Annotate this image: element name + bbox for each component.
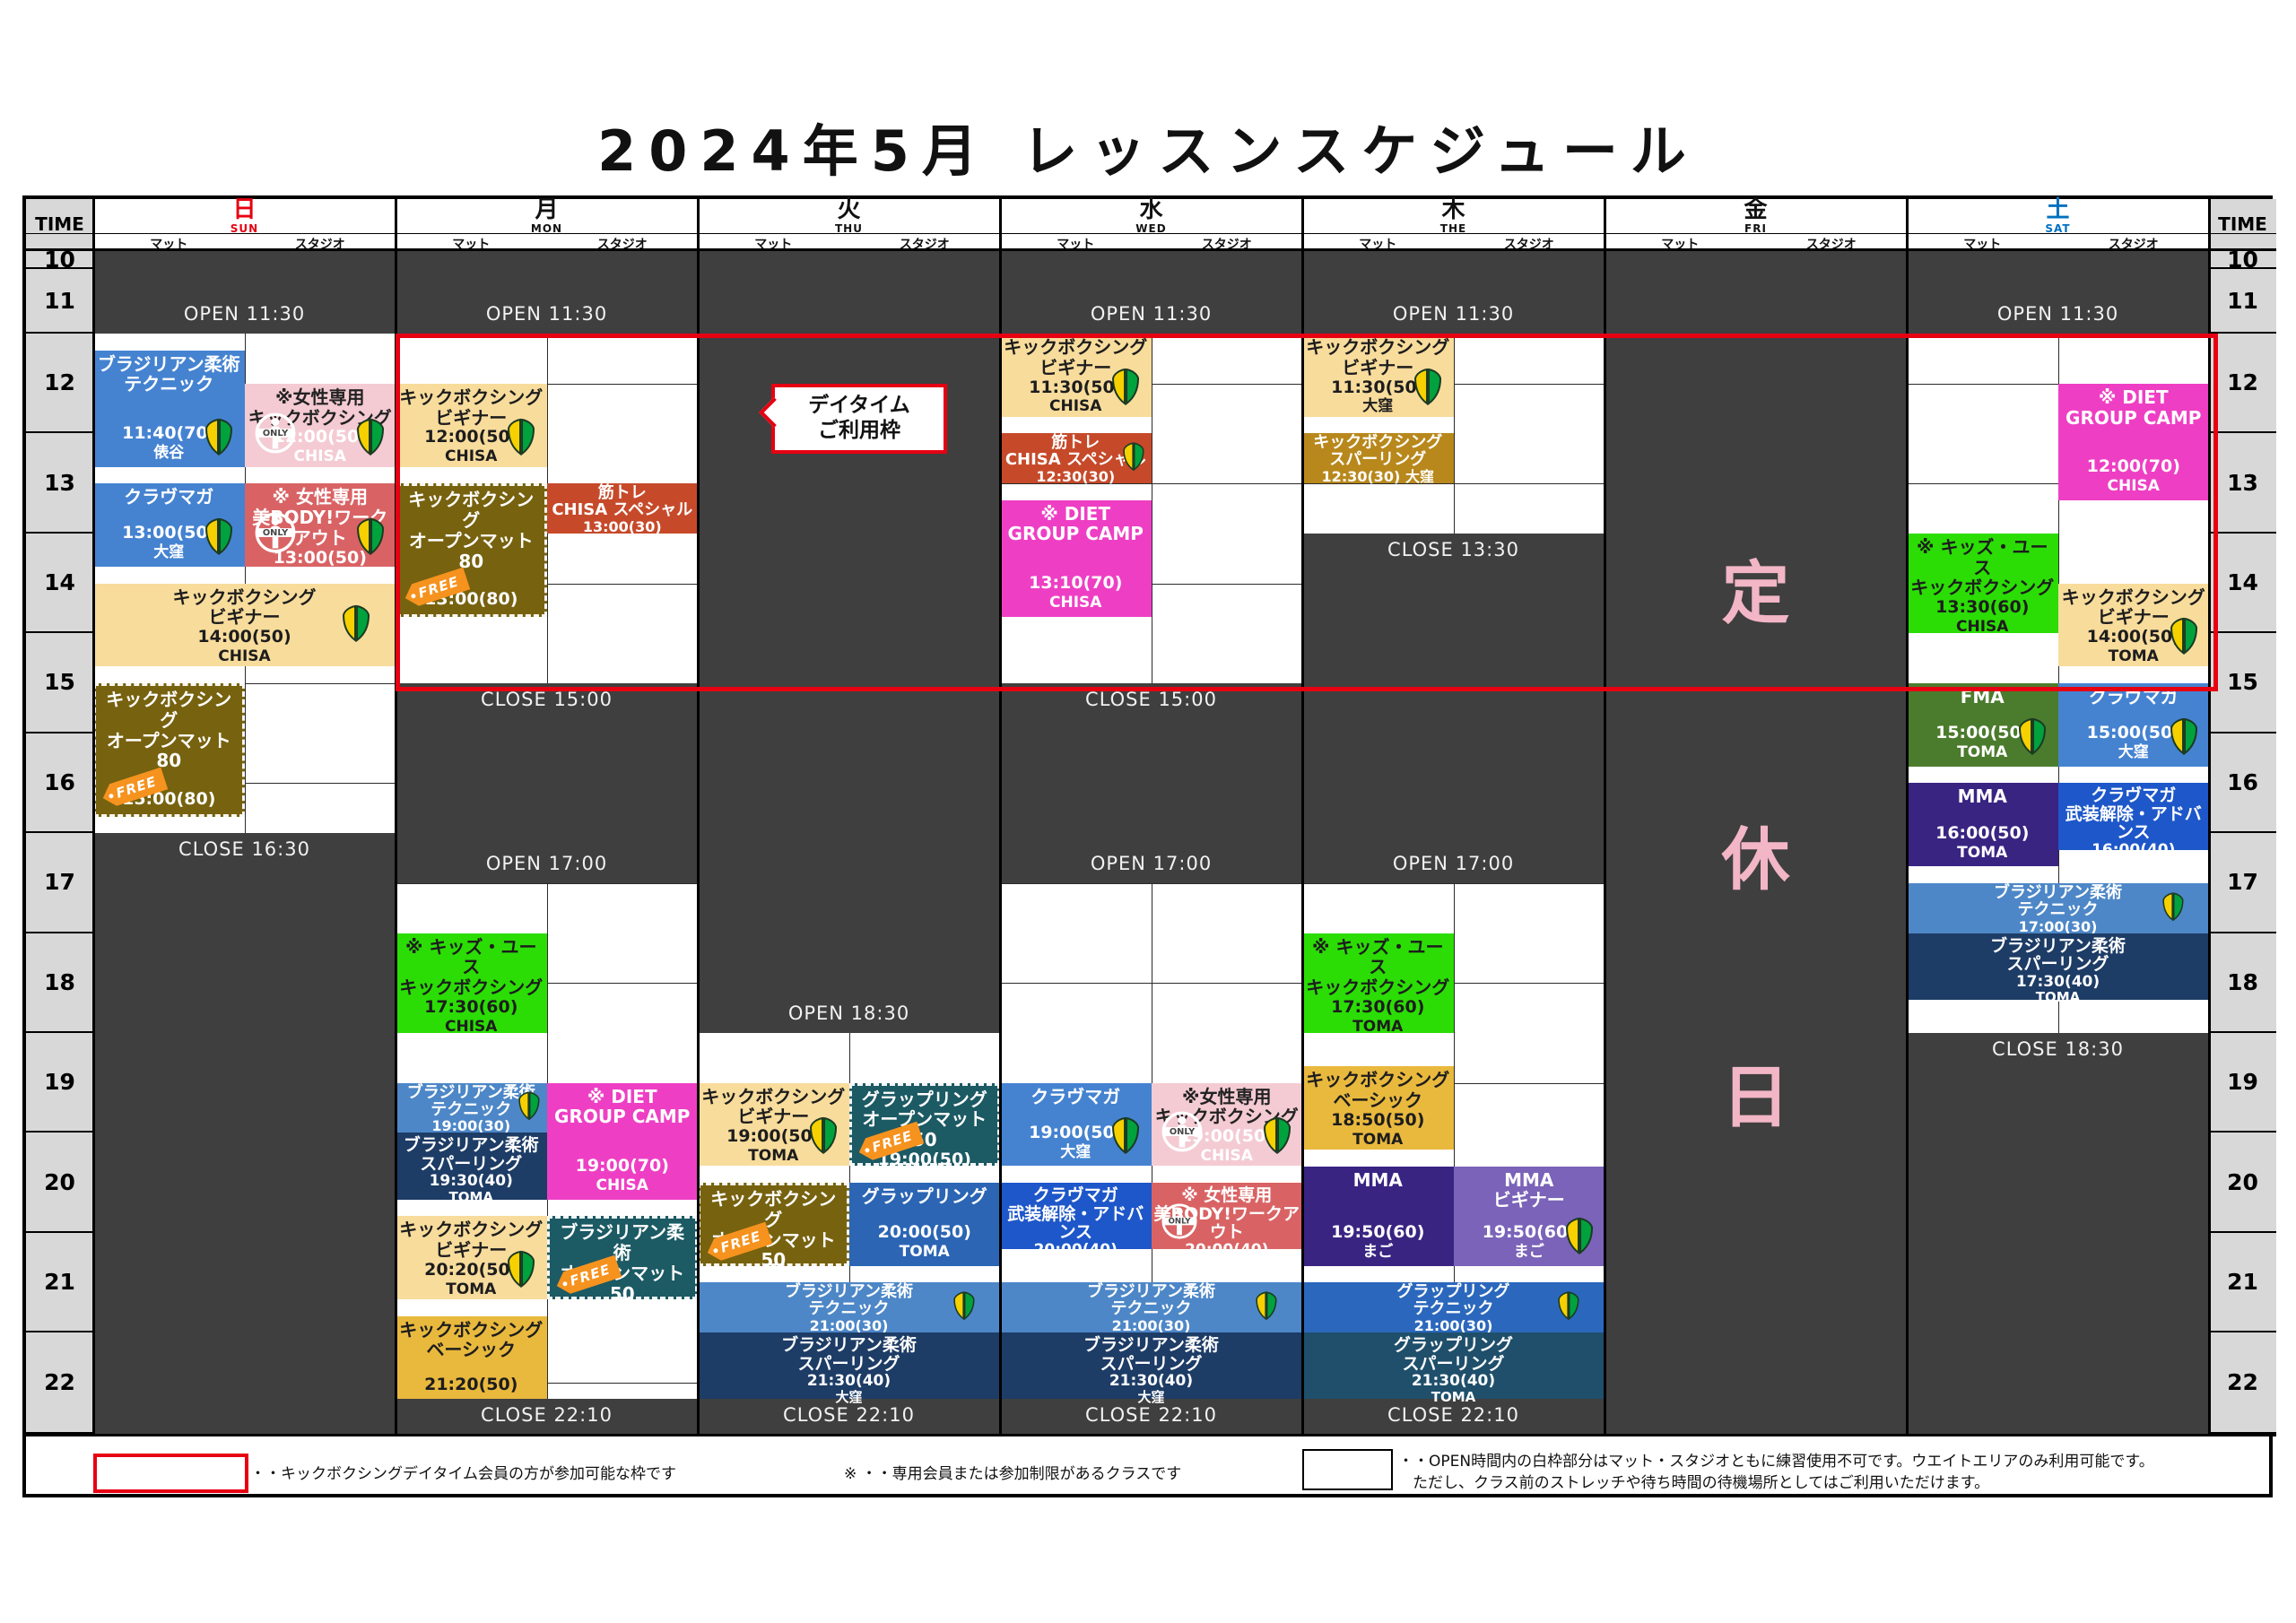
class-title: クラヴマガ <box>2089 687 2179 707</box>
class-time: 19:50(60) <box>1331 1223 1424 1242</box>
class-block: ブラジリアン柔術テクニック21:00(30) <box>1000 1282 1302 1332</box>
class-time: 13:00(30) <box>583 519 662 535</box>
day-kanji-label: 金 <box>1744 197 1767 222</box>
class-block: キックボクシングビギナー12:00(50)CHISA <box>396 384 547 467</box>
page-title: 2024年5月 レッスンスケジュール <box>0 106 2296 187</box>
women-only-icon: ONLY <box>254 511 297 558</box>
class-time: 11:30(50) <box>1029 378 1122 397</box>
class-title: キックボクシングベーシック <box>1306 1070 1449 1111</box>
class-block: クラヴマガ15:00(50)大窪 <box>2058 683 2210 767</box>
class-schedule-info: 16:00(40)大窪 <box>2092 842 2175 873</box>
beginner-mark-icon <box>203 516 235 560</box>
class-time: 21:30(40) <box>807 1373 891 1390</box>
class-schedule-info: 14:00(50)TOMA <box>2087 628 2180 665</box>
class-time: 19:00(50) <box>726 1127 820 1146</box>
class-schedule-info: 17:30(60)CHISA <box>424 998 517 1036</box>
beginner-mark-icon <box>517 1090 542 1124</box>
day-header-sat: 土SAT <box>1907 199 2209 233</box>
class-time: 14:00(50) <box>197 628 291 647</box>
class-schedule-info: 14:00(50)CHISA <box>197 628 291 665</box>
class-schedule-info: 13:00(30) <box>583 519 662 535</box>
class-title: キックボクシングビギナー <box>173 587 317 629</box>
class-schedule-info: 12:00(70)CHISA <box>2087 457 2180 495</box>
open-close-label: OPEN 11:30 <box>93 303 396 325</box>
class-instructor: TOMA <box>1412 1390 1495 1405</box>
time-axis-hour-20: 20 <box>26 1133 93 1232</box>
open-close-label: CLOSE 22:10 <box>1302 1404 1605 1426</box>
class-time: 20:00(50) <box>878 1223 971 1242</box>
class-block: MMA16:00(50)TOMA <box>1907 783 2058 866</box>
class-title: FMA <box>1961 687 2005 707</box>
class-time: 17:30(60) <box>424 998 517 1017</box>
holiday-label-char: 定 <box>1605 538 1907 637</box>
open-close-label: OPEN 17:00 <box>1000 853 1302 874</box>
class-title: ※ DIETGROUP CAMP <box>554 1087 690 1128</box>
class-schedule-info: 12:30(30) <box>1036 469 1115 485</box>
class-block: ※女性専用キックボクシング12:00(50)CHISAONLY <box>245 384 396 467</box>
class-time: 17:30(60) <box>1331 998 1424 1017</box>
class-title: クラヴマガ武装解除・アドバンス <box>1002 1186 1150 1242</box>
open-close-label: CLOSE 15:00 <box>1000 689 1302 710</box>
class-title: ブラジリアン柔術テクニック <box>98 354 240 395</box>
time-axis-header: TIME <box>26 199 93 251</box>
day-column-mon: OPEN 11:30CLOSE 15:00OPEN 17:00CLOSE 22:… <box>396 251 698 1434</box>
class-title: キックボクシングベーシック <box>399 1320 543 1361</box>
svg-text:ONLY: ONLY <box>1168 1218 1191 1227</box>
class-title: ※ キッズ・ユースキックボクシング <box>1304 937 1452 998</box>
open-close-label: CLOSE 22:10 <box>1000 1404 1302 1426</box>
class-time: 12:30(30) 大窪 <box>1322 469 1434 485</box>
time-axis-hour-15: 15 <box>2209 633 2276 733</box>
class-instructor: TOMA <box>1935 744 2029 761</box>
beginner-mark-icon <box>505 1249 537 1292</box>
grid-bottom-border <box>26 1434 2276 1436</box>
class-title: グラップリング <box>862 1186 987 1207</box>
closed-hours-area <box>698 251 1000 1033</box>
class-block: MMA19:50(60)まご <box>1302 1167 1454 1266</box>
day-header-tue: 火THU <box>698 199 1000 233</box>
class-instructor: CHISA <box>2087 478 2180 495</box>
header-bottom-border <box>26 248 2276 251</box>
class-time: 14:00(50) <box>2087 628 2180 647</box>
day-header-fri: 金FRI <box>1605 199 1907 233</box>
beginner-mark-icon <box>1412 367 1444 410</box>
class-instructor: TOMA <box>2016 990 2100 1005</box>
time-axis-hour-22: 22 <box>2209 1332 2276 1434</box>
day-header-wed: 水WED <box>1000 199 1302 233</box>
class-schedule-info: 20:00(50)TOMA <box>878 1223 971 1261</box>
class-schedule-info: 19:50(60)まご <box>1483 1223 1576 1261</box>
day-kanji-label: 土 <box>2046 197 2069 222</box>
class-time: 16:00(50) <box>1935 824 2029 843</box>
class-block: キックボクシングビギナー11:30(50)大窪 <box>1302 334 1454 417</box>
class-instructor: 大窪 <box>2087 744 2180 761</box>
open-close-label: OPEN 11:30 <box>1000 303 1302 325</box>
time-axis-hour-21: 21 <box>2209 1233 2276 1332</box>
class-schedule-info: 13:00(50)大窪 <box>122 524 215 561</box>
day-kanji-label: 水 <box>1139 197 1162 222</box>
class-block: クラヴマガ19:00(50)大窪 <box>1000 1083 1152 1167</box>
class-instructor: 大窪 <box>807 1390 891 1405</box>
class-schedule-info: 17:30(40)TOMA <box>2016 974 2100 1005</box>
class-block: ※ DIETGROUP CAMP13:10(70)CHISA <box>1000 500 1152 617</box>
beginner-mark-icon <box>2168 616 2200 659</box>
class-block: キックボクシングビギナー19:00(50)TOMA <box>698 1083 849 1167</box>
time-axis-hour-14: 14 <box>2209 534 2276 633</box>
women-only-icon: ONLY <box>1161 1110 1204 1157</box>
class-instructor: 大窪 <box>2092 859 2175 874</box>
time-axis-hour-22: 22 <box>26 1332 93 1434</box>
class-time: 16:00(40) <box>2092 842 2175 859</box>
class-block: ※ キッズ・ユースキックボクシング17:30(60)CHISA <box>396 933 547 1033</box>
class-time: 19:00(50) <box>576 1304 669 1323</box>
time-axis-hour-10: 10 <box>2209 251 2276 269</box>
class-time: 11:40(70) <box>122 424 215 443</box>
class-instructor: TOMA <box>424 1281 517 1298</box>
class-title: ブラジリアン柔術テクニック <box>1087 1284 1215 1318</box>
class-instructor: CHISA <box>1935 619 2029 636</box>
class-title: ブラジリアン柔術スパーリング <box>1083 1336 1219 1373</box>
class-title: グラップリングスパーリング <box>1394 1336 1513 1373</box>
class-time: 19:00(50) <box>1029 1124 1122 1142</box>
class-title: ブラジリアン柔術スパーリング <box>781 1336 917 1373</box>
class-title: ※ DIETGROUP CAMP <box>1008 504 1144 545</box>
column-border-line <box>1906 199 1909 1434</box>
class-instructor: CHISA <box>576 1177 669 1194</box>
beginner-mark-icon <box>354 516 387 560</box>
class-block: ※女性専用キックボクシング19:00(50)CHISAONLY <box>1152 1083 1303 1167</box>
class-schedule-info: 21:30(40)TOMA <box>1412 1373 1495 1404</box>
column-border-line <box>2208 199 2211 1434</box>
legend-whitearea-note-1: ・・OPEN時間内の白枠部分はマット・スタジオともに練習使用不可です。ウエイトエ… <box>1398 1448 2154 1471</box>
svg-text:ONLY: ONLY <box>262 528 288 538</box>
day-header-mon: 月MON <box>396 199 698 233</box>
class-instructor: CHISA <box>424 1019 517 1036</box>
class-instructor: CHISA <box>1029 398 1122 415</box>
beginner-mark-icon <box>1261 1115 1293 1159</box>
class-block: ※ キッズ・ユースキックボクシング17:30(60)TOMA <box>1302 933 1454 1033</box>
column-border-line <box>395 199 397 1434</box>
class-time: 20:20(50) <box>424 1261 517 1280</box>
class-block: キックボクシングベーシック18:50(50)TOMA <box>1302 1066 1454 1150</box>
legend-whitearea-note-2: ただし、クラス前のストレッチや待ち時間の待機場所としてはご利用いただけます。 <box>1398 1470 1989 1492</box>
beginner-mark-icon <box>340 603 372 647</box>
holiday-label-char: 日 <box>1605 1042 1907 1141</box>
class-schedule-info: 11:40(70)俵谷 <box>122 424 215 462</box>
day-kanji-label: 木 <box>1441 197 1465 222</box>
class-schedule-info: 19:00(50)大窪 <box>1029 1124 1122 1161</box>
class-block: ブラジリアン柔術スパーリング17:30(40)TOMA <box>1907 933 2209 1000</box>
open-close-label: OPEN 17:00 <box>1302 853 1605 874</box>
class-time: 19:50(60) <box>1483 1223 1576 1242</box>
beginner-mark-icon <box>1121 441 1146 475</box>
header-divider-line <box>26 233 2276 234</box>
lesson-schedule-page: 2024年5月 レッスンスケジュール デイタイム ご利用枠 ・・キックボクシング… <box>0 0 2296 1623</box>
class-block: グラップリングスパーリング21:30(40)TOMA <box>1302 1332 1605 1399</box>
time-axis-hour-16: 16 <box>2209 733 2276 833</box>
class-instructor: CHISA <box>197 648 291 665</box>
class-instructor: TOMA <box>878 1244 971 1261</box>
class-time: 20:00(40) <box>1034 1242 1118 1259</box>
time-axis-hour-10: 10 <box>26 251 93 269</box>
beginner-mark-icon <box>1254 1290 1279 1324</box>
legend-whitearea-swatch <box>1302 1449 1393 1490</box>
class-instructor: まご <box>1483 1244 1576 1261</box>
class-instructor: TOMA <box>726 1148 820 1165</box>
class-schedule-info: 19:30(40)TOMA <box>430 1173 513 1204</box>
class-instructor: TOMA <box>2087 648 2180 665</box>
class-block: MMAビギナー19:50(60)まご <box>1454 1167 1605 1266</box>
class-instructor: TOMA <box>1331 1132 1424 1149</box>
time-axis-hour-12: 12 <box>26 334 93 433</box>
time-axis-hour-15: 15 <box>26 633 93 733</box>
class-block: キックボクシングビギナー14:00(50)CHISA <box>93 584 396 667</box>
time-axis-hour-19: 19 <box>2209 1033 2276 1133</box>
class-time: 12:00(70) <box>2087 457 2180 476</box>
class-title: MMAビギナー <box>1493 1170 1565 1211</box>
beginner-mark-icon <box>2016 716 2048 759</box>
class-title: クラヴマガ <box>124 487 213 508</box>
day-header-thu: 木THE <box>1302 199 1605 233</box>
class-schedule-info: 16:00(50)TOMA <box>1935 824 2029 862</box>
open-close-label: OPEN 11:30 <box>396 303 698 325</box>
class-block: キックボクシングベーシック21:20(50) <box>396 1316 547 1400</box>
column-border-line <box>92 199 95 1434</box>
class-instructor: まご <box>1331 1244 1424 1261</box>
class-time: 19:30(40) <box>430 1173 513 1190</box>
class-schedule-info: 12:30(30) 大窪 <box>1322 469 1434 485</box>
column-border-line <box>1301 199 1304 1434</box>
open-close-label: CLOSE 13:30 <box>1302 539 1605 560</box>
class-schedule-info: 19:00(50)TOMA <box>726 1127 820 1165</box>
class-title: MMA <box>1958 786 2007 807</box>
callout-line1: デイタイム <box>808 394 910 419</box>
open-close-label: OPEN 18:30 <box>698 1002 1000 1024</box>
class-block: ブラジリアン柔術スパーリング21:30(40)大窪 <box>698 1332 1000 1399</box>
class-schedule-info: 13:10(70)CHISA <box>1029 574 1122 612</box>
class-schedule-info: 21:20(50) <box>424 1376 517 1394</box>
closed-hours-area <box>1302 534 1605 883</box>
svg-text:ONLY: ONLY <box>262 429 288 438</box>
day-column-wed: OPEN 11:30CLOSE 15:00OPEN 17:00CLOSE 22:… <box>1000 251 1302 1434</box>
class-schedule-info: 19:00(70)CHISA <box>576 1157 669 1194</box>
class-block: ブラジリアン柔術スパーリング21:30(40)大窪 <box>1000 1332 1302 1399</box>
class-schedule-info: 15:00(50)TOMA <box>1935 724 2029 761</box>
time-axis-hour-11: 11 <box>26 269 93 334</box>
class-block: ブラジリアン柔術テクニック19:00(30) <box>396 1083 547 1133</box>
class-time: 15:00(50) <box>2087 724 2180 742</box>
class-time: 21:30(40) <box>1412 1373 1495 1390</box>
class-instructor: 大窪 <box>1034 1258 1118 1273</box>
class-block: ブラジリアン柔術テクニック17:00(30) <box>1907 883 2209 933</box>
class-block: ※ キッズ・ユースキックボクシング13:30(60)CHISA <box>1907 534 2058 633</box>
class-time: 15:00(50) <box>1935 724 2029 742</box>
class-block: ブラジリアン柔術テクニック11:40(70)俵谷 <box>93 351 245 467</box>
beginner-mark-icon <box>354 417 387 460</box>
time-axis-header: TIME <box>2209 199 2276 251</box>
open-close-label: OPEN 11:30 <box>1907 303 2209 325</box>
class-title: MMA <box>1353 1170 1403 1191</box>
class-block: クラヴマガ武装解除・アドバンス16:00(40)大窪 <box>2058 783 2210 849</box>
class-time: 13:10(70) <box>1029 574 1122 593</box>
class-block: キックボクシングオープンマット8015:00(80)FREE <box>93 683 245 817</box>
class-instructor: CHISA <box>424 448 517 465</box>
class-block: キックボクシングスパーリング12:30(30) 大窪 <box>1302 433 1454 483</box>
class-block: ※ DIETGROUP CAMP19:00(70)CHISA <box>547 1083 699 1200</box>
time-axis-hour-21: 21 <box>26 1233 93 1332</box>
beginner-mark-icon <box>952 1290 977 1324</box>
day-column-sun: OPEN 11:30CLOSE 16:30ブラジリアン柔術テクニック11:40(… <box>93 251 396 1434</box>
class-time: 21:20(50) <box>424 1376 517 1394</box>
class-block: グラップリングオープンマット 5019:00(50)FREE <box>849 1083 1001 1167</box>
class-instructor: 大窪 <box>1109 1390 1193 1405</box>
class-schedule-info: 15:00(50)大窪 <box>2087 724 2180 761</box>
class-schedule-info: 11:30(50)大窪 <box>1331 378 1424 416</box>
class-instructor: CHISA <box>1029 595 1122 612</box>
women-only-icon: ONLY <box>254 412 297 458</box>
column-border-line <box>697 199 700 1434</box>
class-instructor: 大窪 <box>122 544 215 561</box>
women-only-icon: ONLY <box>1161 1202 1198 1244</box>
beginner-mark-icon <box>203 417 235 460</box>
day-kanji-label: 月 <box>535 197 558 222</box>
class-instructor: TOMA <box>430 1190 513 1205</box>
class-title: ※ キッズ・ユースキックボクシング <box>397 937 545 998</box>
class-block: ※ 女性専用美BODY!ワークアウト20:00(40)CHISAONLY <box>1152 1183 1303 1249</box>
time-axis-hour-17: 17 <box>2209 833 2276 933</box>
daytime-callout: デイタイム ご利用枠 <box>771 384 947 454</box>
class-time: 12:00(50) <box>424 428 517 447</box>
class-block: クラヴマガ13:00(50)大窪 <box>93 483 245 567</box>
class-block: グラップリング20:00(50)TOMA <box>849 1183 1001 1266</box>
class-time: 13:00(50) <box>122 524 215 542</box>
class-schedule-info: 20:20(50)TOMA <box>424 1261 517 1298</box>
day-column-thu: OPEN 11:30CLOSE 13:30OPEN 17:00CLOSE 22:… <box>1302 251 1605 1434</box>
class-block: 筋トレCHISA スペシャル12:30(30) <box>1000 433 1152 483</box>
open-close-label: CLOSE 16:30 <box>93 838 396 860</box>
beginner-mark-icon <box>807 1115 839 1159</box>
beginner-mark-icon <box>2161 891 2186 925</box>
class-schedule-info: 18:50(50)TOMA <box>1331 1111 1424 1149</box>
day-column-sat: OPEN 11:30CLOSE 18:30※ DIETGROUP CAMP12:… <box>1907 251 2209 1434</box>
schedule-table: デイタイム ご利用枠 ・・キックボクシングデイタイム会員の方が参加可能な枠です … <box>22 195 2273 1497</box>
class-schedule-info: 19:50(60)まご <box>1331 1223 1424 1261</box>
time-axis-hour-13: 13 <box>2209 433 2276 533</box>
class-block: ※ DIETGROUP CAMP12:00(70)CHISA <box>2058 384 2210 500</box>
open-close-label: CLOSE 22:10 <box>698 1404 1000 1426</box>
class-title: ※ DIETGROUP CAMP <box>2066 387 2201 429</box>
class-time: 17:30(40) <box>2016 974 2100 991</box>
time-axis-hour-14: 14 <box>26 534 93 633</box>
class-title: キックボクシングスパーリング <box>1313 435 1442 469</box>
beginner-mark-icon <box>505 417 537 460</box>
time-axis-hour-17: 17 <box>26 833 93 933</box>
class-time: 13:30(60) <box>1935 598 2029 617</box>
class-schedule-info: 20:00(40)CHISA <box>1185 1242 1268 1273</box>
class-block: キックボクシングオープンマット8013:00(80)FREE <box>396 483 547 617</box>
class-title: ブラジリアン柔術テクニック <box>1994 885 2122 919</box>
class-block: キックボクシングビギナー20:20(50)TOMA <box>396 1216 547 1299</box>
time-axis-hour-16: 16 <box>26 733 93 833</box>
open-close-label: OPEN 17:00 <box>396 853 698 874</box>
class-instructor: 大窪 <box>1331 398 1424 415</box>
class-block: キックボクシングビギナー14:00(50)TOMA <box>2058 584 2210 667</box>
class-schedule-info: 21:30(40)大窪 <box>1109 1373 1193 1404</box>
class-title: クラヴマガ <box>1031 1087 1120 1107</box>
class-title: 筋トレCHISA スペシャル <box>552 485 692 519</box>
time-axis-hour-18: 18 <box>26 933 93 1033</box>
time-axis-hour-19: 19 <box>26 1033 93 1133</box>
time-axis-hour-18: 18 <box>2209 933 2276 1033</box>
closed-hours-area <box>1907 1033 2209 1434</box>
open-close-label: CLOSE 18:30 <box>1907 1038 2209 1060</box>
class-time: 11:30(50) <box>1331 378 1424 397</box>
class-time: 12:30(30) <box>1036 469 1115 485</box>
class-schedule-info: 19:00(50) <box>576 1304 669 1323</box>
class-schedule-info: 13:30(60)CHISA <box>1935 598 2029 636</box>
class-title: ブラジリアン柔術テクニック <box>785 1284 913 1318</box>
open-close-label: CLOSE 15:00 <box>396 689 698 710</box>
legend-restricted-note: ※ ・・専用会員または参加制限があるクラスです <box>844 1461 1181 1483</box>
legend-daytime-swatch <box>93 1454 248 1493</box>
class-time: 21:30(40) <box>1109 1373 1193 1390</box>
class-title: グラップリングテクニック <box>1397 1284 1510 1318</box>
class-block: 筋トレCHISA スペシャル13:00(30) <box>547 483 699 534</box>
day-header-sun: 日SUN <box>93 199 396 233</box>
beginner-mark-icon <box>1109 1115 1142 1159</box>
class-block: FMA15:00(50)TOMA <box>1907 683 2058 767</box>
class-title: キックボクシングオープンマット80 <box>400 490 543 571</box>
class-schedule-info: 20:00(40)大窪 <box>1034 1242 1118 1273</box>
class-block: ブラジリアン柔術オープンマット 5019:00(50)FREE <box>547 1216 699 1299</box>
day-column-fri: 定休日 <box>1605 251 1907 1434</box>
class-time: 18:50(50) <box>1331 1111 1424 1130</box>
class-block: ブラジリアン柔術スパーリング19:30(40)TOMA <box>396 1133 547 1199</box>
class-block: ブラジリアン柔術テクニック21:00(30) <box>698 1282 1000 1332</box>
time-axis-hour-13: 13 <box>26 433 93 533</box>
class-title: ブラジリアン柔術スパーリング <box>1990 937 2126 974</box>
beginner-mark-icon <box>1556 1290 1581 1324</box>
open-close-label: CLOSE 22:10 <box>396 1404 698 1426</box>
beginner-mark-icon <box>1563 1216 1596 1259</box>
class-title: ブラジリアン柔術スパーリング <box>404 1136 539 1173</box>
class-time: 19:00(70) <box>576 1157 669 1176</box>
legend-daytime-note: ・・キックボクシングデイタイム会員の方が参加可能な枠です <box>250 1461 676 1483</box>
day-kanji-label: 火 <box>837 197 860 222</box>
class-instructor: 俵谷 <box>122 445 215 462</box>
class-schedule-info: 11:30(50)CHISA <box>1029 378 1122 416</box>
class-instructor: TOMA <box>1331 1019 1424 1036</box>
class-instructor: CHISA <box>1185 1258 1268 1273</box>
class-block: ※ 女性専用美BODY!ワークアウト13:00(50)CHISAONLY <box>245 483 396 567</box>
class-instructor: TOMA <box>1935 845 2029 862</box>
svg-text:ONLY: ONLY <box>1169 1128 1195 1138</box>
class-block: クラヴマガ武装解除・アドバンス20:00(40)大窪 <box>1000 1183 1152 1249</box>
class-block: キックボクシングオープンマット5020:00(50)FREE <box>698 1183 849 1266</box>
class-block: グラップリングテクニック21:00(30) <box>1302 1282 1605 1332</box>
class-schedule-info: 21:30(40)大窪 <box>807 1373 891 1404</box>
class-title: クラヴマガ武装解除・アドバンス <box>2060 786 2208 842</box>
column-border-line <box>1604 199 1606 1434</box>
column-border-line <box>999 199 1002 1434</box>
class-instructor: 大窪 <box>1029 1144 1122 1161</box>
time-axis-hour-20: 20 <box>2209 1133 2276 1232</box>
class-schedule-info: 12:00(50)CHISA <box>424 428 517 465</box>
callout-line2: ご利用枠 <box>818 419 900 444</box>
class-schedule-info: 17:30(60)TOMA <box>1331 998 1424 1036</box>
time-axis-hour-11: 11 <box>2209 269 2276 334</box>
class-time: 20:00(40) <box>1185 1242 1268 1259</box>
